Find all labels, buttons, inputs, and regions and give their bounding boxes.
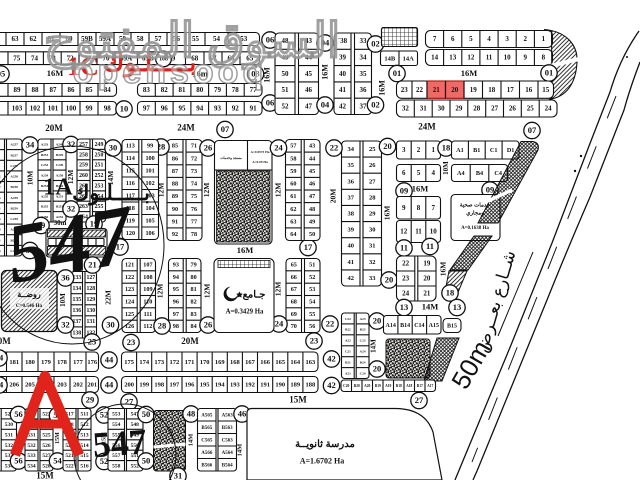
svg-text:32: 32 xyxy=(61,319,70,329)
svg-text:20: 20 xyxy=(373,315,382,325)
svg-text:12M: 12M xyxy=(202,183,211,198)
svg-text:83: 83 xyxy=(191,311,197,318)
svg-text:101: 101 xyxy=(145,168,154,175)
svg-text:62: 62 xyxy=(290,206,296,213)
svg-text:532: 532 xyxy=(5,443,14,449)
svg-text:57: 57 xyxy=(290,143,296,150)
svg-text:195: 195 xyxy=(200,382,211,389)
svg-text:27: 27 xyxy=(369,178,376,185)
svg-text:8: 8 xyxy=(542,54,546,62)
svg-text:07: 07 xyxy=(528,125,537,135)
svg-text:95: 95 xyxy=(179,104,187,112)
svg-text:85: 85 xyxy=(172,143,178,150)
svg-text:A1: A1 xyxy=(456,147,464,154)
svg-text:7: 7 xyxy=(431,204,435,212)
svg-text:12M: 12M xyxy=(203,284,212,299)
svg-text:98: 98 xyxy=(104,104,112,112)
svg-text:58: 58 xyxy=(290,155,296,162)
svg-text:52: 52 xyxy=(100,409,109,419)
svg-text:6: 6 xyxy=(402,169,406,177)
svg-text:166: 166 xyxy=(260,359,271,366)
svg-text:29: 29 xyxy=(369,210,376,217)
svg-text:19: 19 xyxy=(470,86,478,94)
svg-text:C=0.546 Ha: C=0.546 Ha xyxy=(16,303,43,309)
svg-text:34: 34 xyxy=(26,139,35,149)
svg-text:17: 17 xyxy=(304,242,313,252)
svg-text:14M: 14M xyxy=(236,444,243,457)
svg-text:11: 11 xyxy=(486,54,493,62)
svg-text:26: 26 xyxy=(509,105,517,113)
svg-text:29: 29 xyxy=(86,394,95,404)
svg-text:102: 102 xyxy=(30,104,41,112)
svg-text:B4: B4 xyxy=(476,170,483,177)
svg-text:07: 07 xyxy=(221,124,230,134)
svg-text:34: 34 xyxy=(360,54,368,62)
svg-text:مدرسة ثانويــة: مدرسة ثانويــة xyxy=(295,439,355,450)
svg-text:73: 73 xyxy=(191,168,197,175)
svg-text:45: 45 xyxy=(309,168,315,175)
svg-text:54: 54 xyxy=(53,455,62,465)
svg-text:A22: A22 xyxy=(345,339,351,343)
svg-text:167: 167 xyxy=(245,359,256,366)
svg-text:B22: B22 xyxy=(345,328,351,332)
svg-text:94: 94 xyxy=(196,104,204,112)
svg-text:64: 64 xyxy=(290,231,296,238)
svg-text:68: 68 xyxy=(291,299,297,306)
svg-text:525: 525 xyxy=(42,432,51,438)
svg-text:251: 251 xyxy=(95,163,104,169)
svg-text:40: 40 xyxy=(339,70,347,78)
svg-text:25: 25 xyxy=(369,146,376,153)
svg-text:24: 24 xyxy=(402,290,410,298)
svg-text:37: 37 xyxy=(360,102,368,110)
svg-text:25: 25 xyxy=(527,105,535,113)
svg-text:C565: C565 xyxy=(201,438,213,443)
svg-text:175: 175 xyxy=(124,359,135,366)
svg-text:A566: A566 xyxy=(201,451,213,456)
svg-text:50: 50 xyxy=(282,70,290,78)
svg-text:20M: 20M xyxy=(0,336,11,346)
svg-text:38: 38 xyxy=(348,210,355,217)
svg-text:66: 66 xyxy=(291,274,297,281)
svg-text:B258: B258 xyxy=(11,185,19,189)
svg-text:547: 547 xyxy=(91,421,148,465)
svg-text:95: 95 xyxy=(173,286,179,293)
svg-text:17: 17 xyxy=(507,86,515,94)
svg-text:190: 190 xyxy=(275,382,285,389)
svg-text:16M: 16M xyxy=(383,206,392,221)
svg-text:130: 130 xyxy=(86,308,95,314)
svg-text:15M: 15M xyxy=(55,432,61,444)
svg-text:B21: B21 xyxy=(345,360,351,364)
svg-text:129: 129 xyxy=(86,297,95,303)
svg-text:44: 44 xyxy=(105,354,114,364)
svg-text:B18: B18 xyxy=(396,384,402,388)
svg-text:100: 100 xyxy=(145,155,154,162)
svg-text:20M: 20M xyxy=(45,123,63,133)
svg-text:1A: 1A xyxy=(43,175,73,201)
svg-text:94: 94 xyxy=(173,274,179,281)
svg-text:174: 174 xyxy=(139,359,150,366)
svg-text:1: 1 xyxy=(542,35,546,43)
svg-text:14B: 14B xyxy=(384,55,396,62)
svg-text:205: 205 xyxy=(25,382,36,389)
svg-text:09: 09 xyxy=(400,185,409,195)
svg-text:A=0.09 Ha: A=0.09 Ha xyxy=(252,160,268,164)
svg-text:35: 35 xyxy=(348,162,355,169)
svg-text:84: 84 xyxy=(191,323,197,330)
svg-text:B563: B563 xyxy=(222,426,233,431)
svg-text:جـامع: جـامع xyxy=(243,290,266,301)
svg-text:163: 163 xyxy=(306,359,317,366)
svg-text:106: 106 xyxy=(145,230,154,237)
svg-text:14: 14 xyxy=(431,54,439,62)
svg-text:26: 26 xyxy=(369,162,376,169)
svg-text:16M: 16M xyxy=(377,80,386,96)
svg-text:201: 201 xyxy=(87,382,97,389)
svg-text:8: 8 xyxy=(417,204,421,212)
svg-text:51: 51 xyxy=(309,262,315,269)
svg-text:56: 56 xyxy=(14,455,23,465)
svg-text:A19: A19 xyxy=(385,384,391,388)
svg-text:opensooq: opensooq xyxy=(73,53,267,91)
svg-text:74: 74 xyxy=(31,54,39,62)
svg-text:191: 191 xyxy=(260,382,270,389)
svg-text:99: 99 xyxy=(86,104,94,112)
svg-text:04: 04 xyxy=(321,99,330,109)
svg-text:2: 2 xyxy=(417,146,421,154)
svg-text:19: 19 xyxy=(423,260,431,268)
svg-text:88: 88 xyxy=(32,86,40,94)
svg-text:192: 192 xyxy=(245,382,255,389)
svg-text:531: 531 xyxy=(5,432,14,438)
svg-text:53: 53 xyxy=(309,286,315,293)
svg-text:22M: 22M xyxy=(104,290,113,305)
svg-text:1: 1 xyxy=(431,146,435,154)
svg-text:C4: C4 xyxy=(494,170,502,177)
svg-text:101: 101 xyxy=(48,104,59,112)
svg-text:189: 189 xyxy=(290,382,301,389)
svg-text:89: 89 xyxy=(172,193,178,200)
svg-text:27: 27 xyxy=(415,395,424,405)
svg-text:168: 168 xyxy=(230,359,241,366)
svg-text:178: 178 xyxy=(57,359,68,366)
svg-text:B19: B19 xyxy=(375,384,381,388)
svg-text:511: 511 xyxy=(81,411,89,417)
svg-text:18: 18 xyxy=(442,142,451,152)
svg-text:A565: A565 xyxy=(201,413,213,418)
svg-text:12M: 12M xyxy=(274,282,283,297)
svg-text:20: 20 xyxy=(383,141,392,151)
svg-text:69: 69 xyxy=(291,311,297,318)
svg-text:B14: B14 xyxy=(400,323,410,329)
svg-text:47: 47 xyxy=(305,102,313,110)
svg-text:48: 48 xyxy=(309,206,315,213)
svg-text:63: 63 xyxy=(290,219,296,226)
svg-text:97: 97 xyxy=(173,311,179,318)
svg-text:C249: C249 xyxy=(56,163,64,167)
svg-text:70: 70 xyxy=(291,323,297,330)
svg-text:28: 28 xyxy=(473,105,481,113)
svg-text:80: 80 xyxy=(191,274,197,281)
svg-text:B17: B17 xyxy=(417,384,423,388)
svg-text:52: 52 xyxy=(309,274,315,281)
svg-text:20M: 20M xyxy=(181,336,199,346)
svg-text:558: 558 xyxy=(112,464,121,470)
svg-text:515: 515 xyxy=(80,453,89,459)
svg-text:114: 114 xyxy=(126,155,135,162)
svg-text:3: 3 xyxy=(402,146,406,154)
svg-text:91: 91 xyxy=(172,219,178,226)
svg-text:199: 199 xyxy=(139,382,150,389)
svg-text:90: 90 xyxy=(172,206,178,213)
svg-text:40: 40 xyxy=(348,243,355,250)
svg-text:45: 45 xyxy=(305,70,313,78)
svg-text:173: 173 xyxy=(154,359,165,366)
svg-text:26: 26 xyxy=(204,142,213,152)
svg-text:170: 170 xyxy=(200,359,210,366)
svg-text:67: 67 xyxy=(291,286,297,293)
svg-text:110: 110 xyxy=(143,299,152,306)
svg-text:A257: A257 xyxy=(10,143,18,147)
svg-text:111: 111 xyxy=(144,311,153,318)
svg-text:14M: 14M xyxy=(370,339,378,353)
svg-text:23: 23 xyxy=(310,335,319,345)
svg-text:79: 79 xyxy=(191,262,197,269)
svg-text:13: 13 xyxy=(449,54,457,62)
svg-text:77: 77 xyxy=(191,219,197,226)
svg-text:14M: 14M xyxy=(422,301,439,311)
svg-text:259: 259 xyxy=(79,163,88,169)
svg-text:112: 112 xyxy=(143,323,152,330)
svg-text:179: 179 xyxy=(41,359,52,366)
svg-text:10M: 10M xyxy=(442,161,450,175)
svg-text:30: 30 xyxy=(106,319,115,329)
svg-text:206: 206 xyxy=(9,382,20,389)
svg-text:31: 31 xyxy=(369,243,376,250)
svg-text:93: 93 xyxy=(214,104,222,112)
svg-text:200: 200 xyxy=(124,382,134,389)
svg-text:A563: A563 xyxy=(222,413,234,418)
svg-text:11: 11 xyxy=(415,228,422,236)
svg-text:A564: A564 xyxy=(222,451,234,456)
svg-text:01: 01 xyxy=(545,67,554,77)
svg-text:50: 50 xyxy=(309,231,315,238)
svg-text:11: 11 xyxy=(400,242,408,252)
svg-text:33: 33 xyxy=(360,37,368,45)
svg-text:32: 32 xyxy=(402,105,410,113)
svg-text:526: 526 xyxy=(42,443,51,449)
svg-text:194: 194 xyxy=(215,382,226,389)
svg-text:24M: 24M xyxy=(418,122,436,132)
svg-text:113: 113 xyxy=(126,143,135,150)
svg-text:56: 56 xyxy=(14,409,23,419)
svg-text:98: 98 xyxy=(173,323,179,330)
svg-text:530: 530 xyxy=(5,422,14,428)
svg-text:B565: B565 xyxy=(201,426,212,431)
svg-text:51: 51 xyxy=(282,86,290,94)
svg-text:21: 21 xyxy=(423,290,431,298)
svg-text:A15: A15 xyxy=(429,323,439,329)
svg-text:37: 37 xyxy=(348,194,355,201)
svg-text:06: 06 xyxy=(266,97,275,107)
svg-text:81: 81 xyxy=(191,286,197,293)
svg-text:23: 23 xyxy=(402,275,410,283)
svg-text:193: 193 xyxy=(230,382,241,389)
svg-text:534: 534 xyxy=(27,464,36,470)
svg-text:A258: A258 xyxy=(10,174,18,178)
svg-text:198: 198 xyxy=(154,382,165,389)
svg-text:42: 42 xyxy=(327,353,336,363)
svg-text:3: 3 xyxy=(505,35,509,43)
svg-text:252: 252 xyxy=(95,173,104,179)
svg-text:103: 103 xyxy=(12,104,23,112)
svg-text:180: 180 xyxy=(25,359,35,366)
svg-text:16M: 16M xyxy=(237,245,254,255)
svg-text:20: 20 xyxy=(423,275,431,283)
svg-text:176: 176 xyxy=(87,359,98,366)
svg-text:22: 22 xyxy=(330,142,339,152)
svg-text:بـــــلـوك: بـــــلـوك xyxy=(72,182,150,206)
svg-text:A=0.1638 Ha: A=0.1638 Ha xyxy=(461,226,489,231)
svg-text:43: 43 xyxy=(309,143,315,150)
svg-text:A=0.3429 Ha: A=0.3429 Ha xyxy=(226,309,264,316)
svg-text:16M: 16M xyxy=(47,68,64,78)
svg-text:31: 31 xyxy=(420,105,428,113)
svg-text:169: 169 xyxy=(215,359,226,366)
svg-text:197: 197 xyxy=(170,382,181,389)
svg-text:532: 532 xyxy=(27,443,36,449)
svg-text:24: 24 xyxy=(545,105,553,113)
svg-text:11: 11 xyxy=(426,241,434,251)
svg-text:C563: C563 xyxy=(222,438,234,443)
svg-text:D1: D1 xyxy=(507,147,515,154)
svg-text:196: 196 xyxy=(185,382,196,389)
svg-text:32: 32 xyxy=(67,139,76,149)
svg-text:76: 76 xyxy=(191,206,197,213)
svg-text:A253: A253 xyxy=(41,142,49,146)
svg-text:258: 258 xyxy=(79,152,88,158)
svg-text:59: 59 xyxy=(290,168,296,175)
svg-text:46: 46 xyxy=(238,408,247,418)
svg-text:49: 49 xyxy=(309,219,315,226)
svg-text:109: 109 xyxy=(143,286,152,293)
svg-text:513: 513 xyxy=(80,432,89,438)
svg-text:16M: 16M xyxy=(412,183,429,193)
svg-text:02: 02 xyxy=(371,38,380,48)
svg-text:7: 7 xyxy=(433,35,437,43)
svg-text:105: 105 xyxy=(145,218,154,225)
svg-text:02: 02 xyxy=(371,99,380,109)
svg-text:188: 188 xyxy=(306,382,317,389)
svg-text:33: 33 xyxy=(369,275,376,282)
svg-text:41: 41 xyxy=(339,86,347,94)
svg-text:522: 522 xyxy=(65,464,74,470)
svg-text:39: 39 xyxy=(348,227,355,234)
svg-text:165: 165 xyxy=(275,359,286,366)
svg-text:75: 75 xyxy=(13,54,21,62)
svg-text:41: 41 xyxy=(348,259,355,266)
svg-text:13: 13 xyxy=(453,302,462,312)
svg-text:136: 136 xyxy=(72,308,81,314)
svg-text:C24: C24 xyxy=(360,371,366,375)
svg-text:10M: 10M xyxy=(59,293,67,307)
svg-text:29: 29 xyxy=(455,105,463,113)
svg-text:A4: A4 xyxy=(457,170,465,177)
svg-text:44: 44 xyxy=(105,379,114,389)
svg-text:249: 249 xyxy=(95,142,104,148)
svg-text:20: 20 xyxy=(451,86,459,94)
svg-text:26: 26 xyxy=(204,319,213,329)
svg-text:61: 61 xyxy=(290,193,296,200)
svg-text:A20: A20 xyxy=(364,384,370,388)
svg-text:B20: B20 xyxy=(354,384,360,388)
svg-text:46: 46 xyxy=(309,181,315,188)
svg-text:C21: C21 xyxy=(345,349,351,353)
svg-text:A21: A21 xyxy=(345,371,351,375)
svg-text:36: 36 xyxy=(360,86,368,94)
svg-text:89: 89 xyxy=(14,86,22,94)
svg-text:21: 21 xyxy=(433,86,441,94)
svg-text:28: 28 xyxy=(158,320,167,330)
svg-text:125: 125 xyxy=(125,311,134,318)
svg-text:18: 18 xyxy=(446,287,455,297)
svg-text:63: 63 xyxy=(12,35,20,43)
svg-text:93: 93 xyxy=(173,262,179,269)
svg-text:62: 62 xyxy=(30,35,38,43)
svg-text:514: 514 xyxy=(80,443,89,449)
svg-text:30: 30 xyxy=(438,105,446,113)
svg-text:88: 88 xyxy=(172,181,178,188)
svg-text:27: 27 xyxy=(491,105,499,113)
svg-text:86: 86 xyxy=(172,155,178,162)
svg-text:A=0.0973 Ha: A=0.0973 Ha xyxy=(251,150,270,154)
svg-text:16: 16 xyxy=(525,86,533,94)
svg-text:75: 75 xyxy=(191,193,197,200)
svg-text:124: 124 xyxy=(125,299,134,306)
svg-text:20: 20 xyxy=(385,274,394,284)
svg-text:56: 56 xyxy=(309,323,315,330)
svg-text:B15: B15 xyxy=(447,323,457,329)
svg-text:C23: C23 xyxy=(360,339,366,343)
svg-text:131: 131 xyxy=(86,319,95,325)
svg-text:203: 203 xyxy=(57,382,68,389)
svg-text:97: 97 xyxy=(143,104,151,112)
svg-text:135: 135 xyxy=(72,297,81,303)
svg-text:35: 35 xyxy=(360,70,368,78)
svg-text:42: 42 xyxy=(327,380,336,390)
svg-text:42: 42 xyxy=(339,102,347,110)
svg-text:A17: A17 xyxy=(427,384,433,388)
svg-text:15: 15 xyxy=(542,86,550,94)
svg-text:104: 104 xyxy=(145,205,154,212)
svg-text:24M: 24M xyxy=(177,123,195,133)
svg-text:138: 138 xyxy=(72,330,81,336)
svg-text:18: 18 xyxy=(488,86,496,94)
svg-text:92: 92 xyxy=(172,231,178,238)
svg-text:5: 5 xyxy=(417,169,421,177)
svg-text:30: 30 xyxy=(109,142,118,152)
svg-text:C253: C253 xyxy=(41,163,49,167)
svg-text:92: 92 xyxy=(232,104,240,112)
svg-text:A=1.6702 Ha: A=1.6702 Ha xyxy=(300,456,345,465)
svg-text:A14: A14 xyxy=(386,323,396,329)
svg-text:B1: B1 xyxy=(473,147,480,154)
svg-text:82: 82 xyxy=(191,299,197,306)
svg-text:2: 2 xyxy=(524,35,528,43)
svg-text:05: 05 xyxy=(0,68,5,78)
svg-text:9: 9 xyxy=(402,204,406,212)
